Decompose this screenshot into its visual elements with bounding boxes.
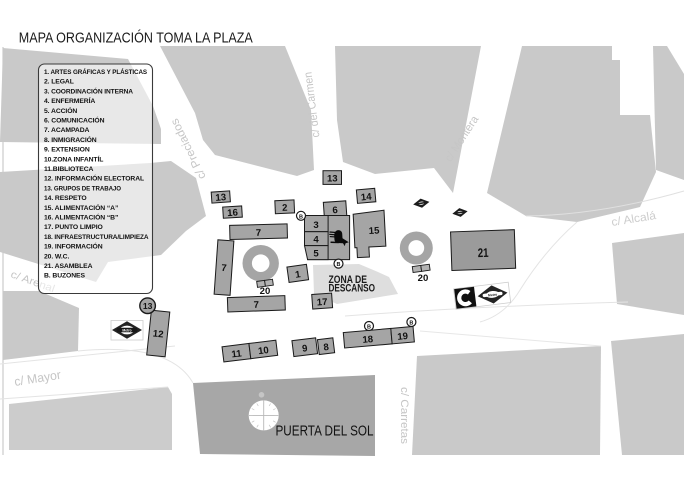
svg-text:14: 14 xyxy=(360,191,372,203)
svg-text:13. GRUPOS DE TRABAJO: 13. GRUPOS DE TRABAJO xyxy=(44,185,121,192)
svg-text:3: 3 xyxy=(313,220,318,231)
svg-text:B: B xyxy=(409,321,413,327)
svg-text:13: 13 xyxy=(143,301,153,311)
svg-text:2: 2 xyxy=(282,203,288,214)
svg-text:5. ACCIÓN: 5. ACCIÓN xyxy=(44,106,77,115)
svg-text:7. ACAMPADA: 7. ACAMPADA xyxy=(44,127,90,134)
svg-text:12: 12 xyxy=(152,328,164,340)
svg-text:18: 18 xyxy=(362,334,374,346)
svg-text:4: 4 xyxy=(313,235,319,246)
svg-text:3. COORDINACIÓN INTERNA: 3. COORDINACIÓN INTERNA xyxy=(44,86,133,95)
svg-text:8. INMIGRACIÓN: 8. INMIGRACIÓN xyxy=(44,135,97,144)
svg-text:2. LEGAL: 2. LEGAL xyxy=(44,79,74,86)
svg-text:B: B xyxy=(299,214,303,220)
svg-text:13: 13 xyxy=(327,174,338,185)
svg-text:19: 19 xyxy=(397,331,409,343)
svg-text:Metro: Metro xyxy=(122,329,131,333)
svg-text:11: 11 xyxy=(231,348,243,360)
svg-text:21. ASAMBLEA: 21. ASAMBLEA xyxy=(44,263,93,270)
svg-text:4. ENFERMERÍA: 4. ENFERMERÍA xyxy=(44,96,95,105)
svg-text:7: 7 xyxy=(221,263,227,274)
svg-text:PUERTA DEL SOL: PUERTA DEL SOL xyxy=(276,424,374,440)
svg-text:DESCANSO: DESCANSO xyxy=(329,282,376,294)
svg-text:17: 17 xyxy=(317,297,328,309)
svg-text:15: 15 xyxy=(368,225,380,237)
svg-text:11.BIBLIOTECA: 11.BIBLIOTECA xyxy=(44,166,93,173)
svg-text:18. INFRAESTRUCTURA/LIMPIEZA: 18. INFRAESTRUCTURA/LIMPIEZA xyxy=(44,234,149,241)
svg-text:19. INFORMACIÓN: 19. INFORMACIÓN xyxy=(44,242,103,251)
svg-text:6. COMUNICACIÓN: 6. COMUNICACIÓN xyxy=(44,116,105,125)
svg-text:20: 20 xyxy=(260,286,271,297)
svg-text:16. ALIMENTACIÓN “B”: 16. ALIMENTACIÓN “B” xyxy=(44,213,118,222)
svg-text:6: 6 xyxy=(332,205,338,216)
svg-text:10.ZONA INFANTÍL: 10.ZONA INFANTÍL xyxy=(44,154,103,163)
svg-text:21: 21 xyxy=(477,246,488,260)
svg-text:B: B xyxy=(367,325,371,331)
svg-text:MAPA ORGANIZACIÓN TOMA LA PLAZ: MAPA ORGANIZACIÓN TOMA LA PLAZA xyxy=(19,30,253,47)
svg-text:20: 20 xyxy=(418,273,429,284)
svg-text:14. RESPETO: 14. RESPETO xyxy=(44,195,87,202)
svg-text:B: B xyxy=(337,262,341,268)
svg-text:5: 5 xyxy=(313,249,319,260)
svg-text:20. W.C.: 20. W.C. xyxy=(44,253,69,260)
svg-text:17. PUNTO LIMPIO: 17. PUNTO LIMPIO xyxy=(44,224,103,231)
svg-text:15. ALIMENTACIÓN “A”: 15. ALIMENTACIÓN “A” xyxy=(44,203,118,212)
svg-text:13: 13 xyxy=(215,192,226,204)
svg-text:12. INFORMACIÓN ELECTORAL: 12. INFORMACIÓN ELECTORAL xyxy=(44,174,144,183)
svg-text:1. ARTES GRÁFICAS Y PLÁSTICAS: 1. ARTES GRÁFICAS Y PLÁSTICAS xyxy=(44,67,148,76)
svg-text:16: 16 xyxy=(227,207,238,219)
svg-text:c/ Carretas: c/ Carretas xyxy=(398,387,410,445)
svg-text:10: 10 xyxy=(258,345,270,357)
svg-text:7: 7 xyxy=(256,228,262,239)
svg-text:B. BUZONES: B. BUZONES xyxy=(44,273,85,280)
svg-text:9. EXTENSION: 9. EXTENSION xyxy=(44,147,90,154)
svg-text:7: 7 xyxy=(253,300,259,311)
